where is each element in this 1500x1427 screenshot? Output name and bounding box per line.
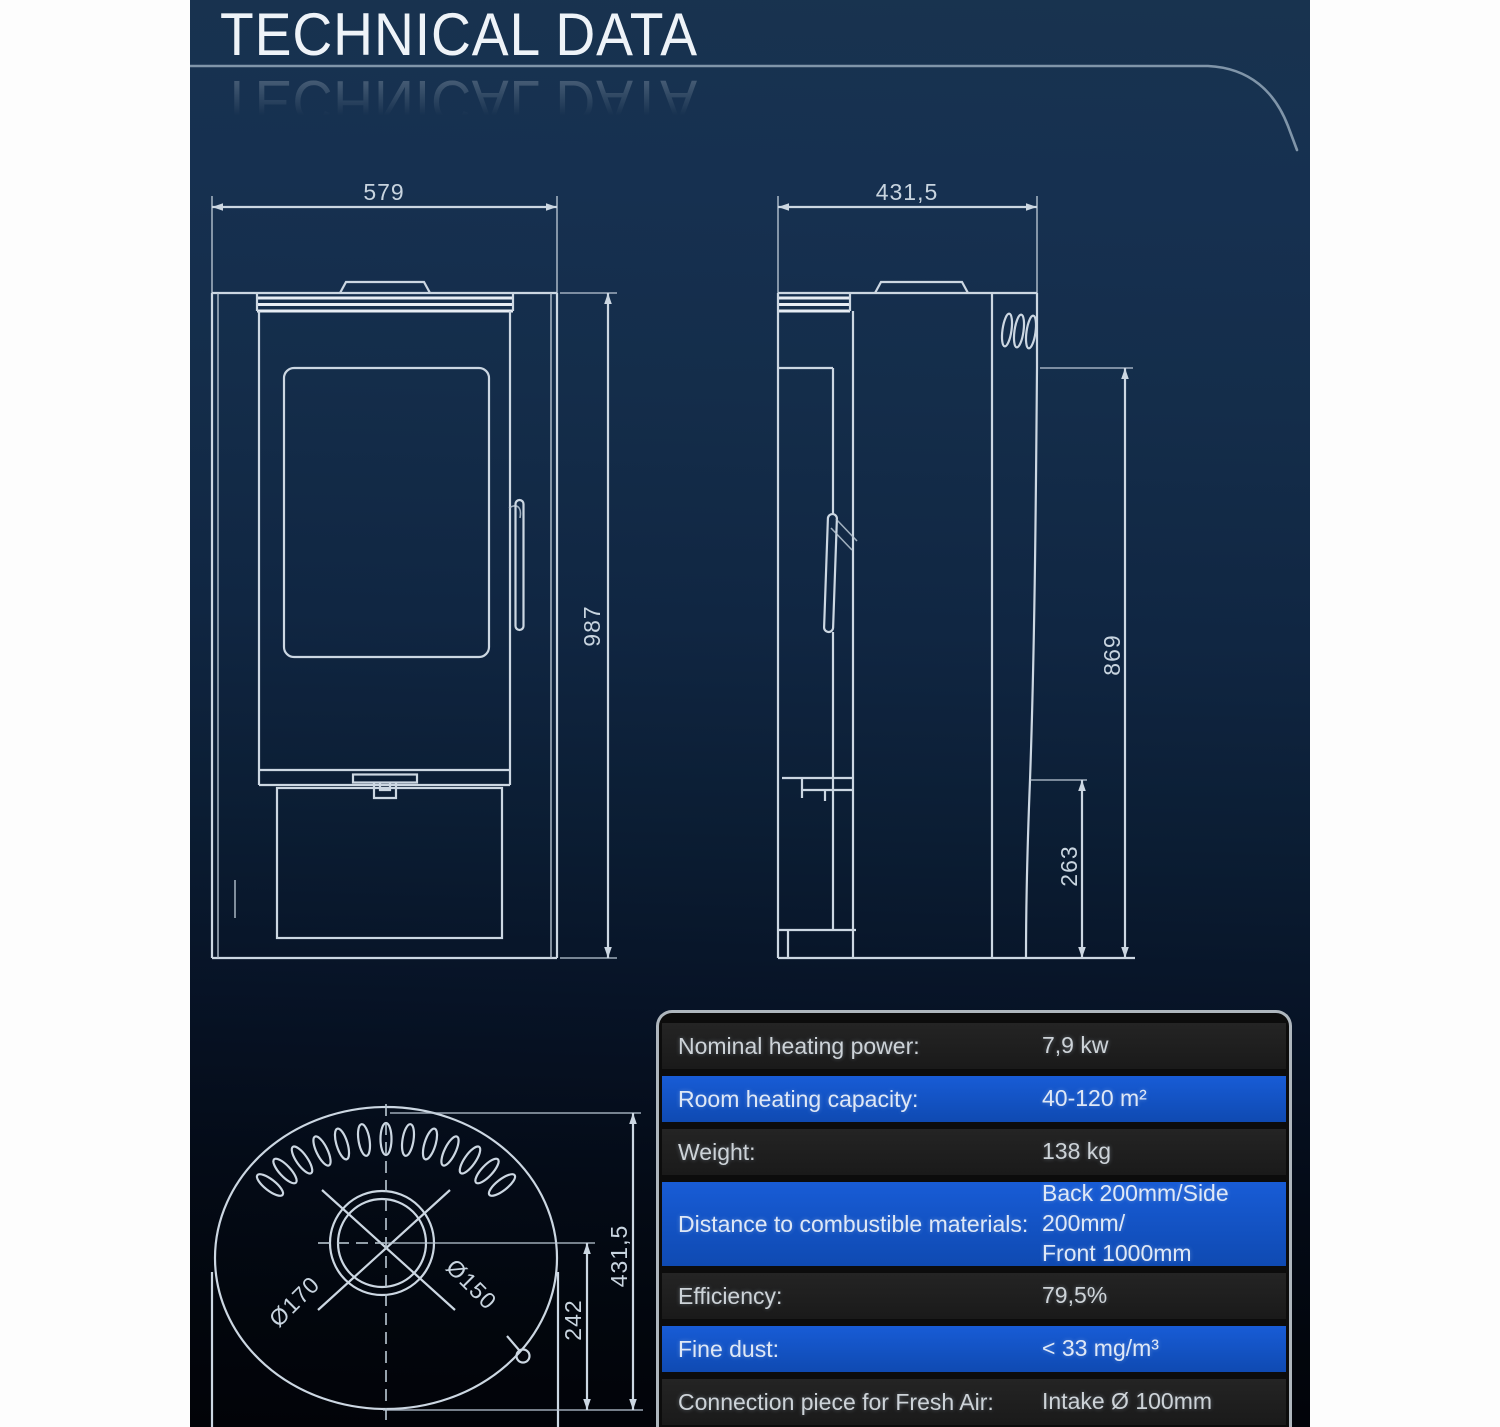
dim-top-flue-offset: 242 xyxy=(560,1299,586,1340)
spec-row-distance-to-combustible-materials: Distance to combustible materials: Back … xyxy=(662,1182,1286,1266)
side-view-drawing: 431,5 xyxy=(778,179,1135,958)
spec-value: 79,5% xyxy=(1042,1281,1107,1311)
dim-side-plinth: 263 xyxy=(1056,845,1082,886)
spec-label: Nominal heating power: xyxy=(662,1033,920,1060)
spec-value: Back 200mm/Side 200mm/ Front 1000mm xyxy=(1042,1179,1286,1269)
spec-table: Nominal heating power: 7,9 kw Room heati… xyxy=(656,1010,1292,1427)
spec-label: Efficiency: xyxy=(662,1283,782,1310)
dim-side-height: 869 xyxy=(1099,634,1125,675)
spec-label: Fine dust: xyxy=(662,1336,779,1363)
dim-side-depth: 431,5 xyxy=(876,179,939,205)
label-outer-diameter: Ø170 xyxy=(264,1271,325,1332)
spec-value: Intake Ø 100mm xyxy=(1042,1387,1212,1417)
top-view-drawing: Ø170 Ø150 431,5 242 xyxy=(212,1104,643,1427)
spec-row-nominal-heating-power: Nominal heating power: 7,9 kw xyxy=(662,1023,1286,1069)
spec-value: 138 kg xyxy=(1042,1137,1111,1167)
spec-row-fine-dust: Fine dust: < 33 mg/m³ xyxy=(662,1326,1286,1372)
spec-value: 7,9 kw xyxy=(1042,1031,1108,1061)
spec-row-room-heating-capacity: Room heating capacity: 40-120 m² xyxy=(662,1076,1286,1122)
spec-label: Weight: xyxy=(662,1139,756,1166)
front-view-drawing: 579 987 xyxy=(212,179,617,958)
spec-label: Room heating capacity: xyxy=(662,1086,918,1113)
dim-front-height: 987 xyxy=(579,605,605,646)
spec-value: < 33 mg/m³ xyxy=(1042,1334,1159,1364)
spec-label: Distance to combustible materials: xyxy=(662,1211,1028,1238)
dim-front-width: 579 xyxy=(363,179,404,205)
datasheet-page: TECHNICAL DATA TECHNICAL DATA 579 xyxy=(190,0,1310,1427)
spec-value: 40-120 m² xyxy=(1042,1084,1147,1114)
dim-top-depth: 431,5 xyxy=(606,1225,632,1288)
spec-row-fresh-air-connection: Connection piece for Fresh Air: Intake Ø… xyxy=(662,1379,1286,1425)
spec-label: Connection piece for Fresh Air: xyxy=(662,1389,994,1416)
spec-row-efficiency: Efficiency: 79,5% xyxy=(662,1273,1286,1319)
spec-row-weight: Weight: 138 kg xyxy=(662,1129,1286,1175)
